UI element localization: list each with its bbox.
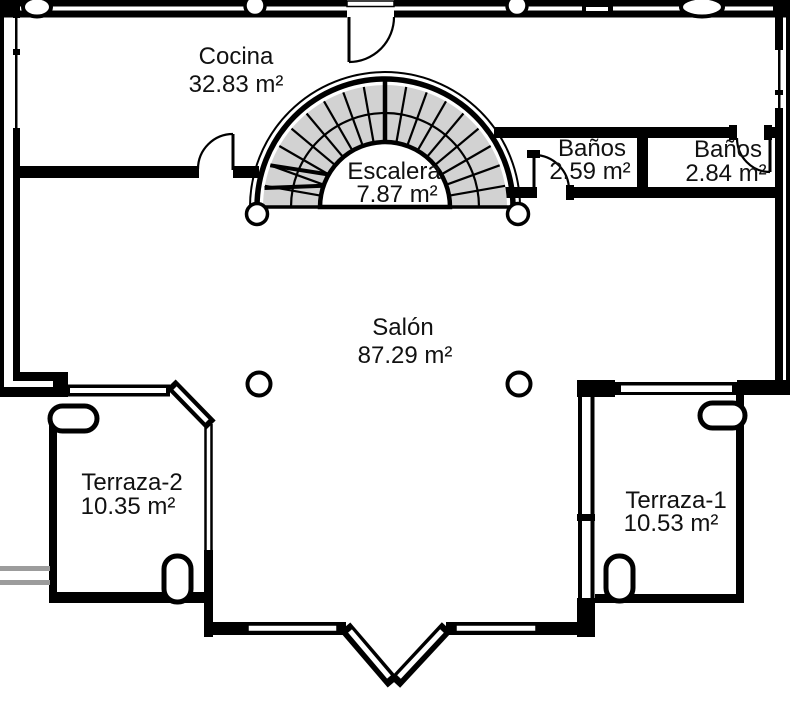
room-name-terraza-2: Terraza-2 — [81, 469, 182, 496]
room-name-salon: Salón — [372, 314, 433, 341]
terraza-2-column-top — [50, 406, 97, 431]
room-area-salon: 87.29 m² — [358, 342, 453, 369]
room-area-terraza-1: 10.53 m² — [624, 510, 719, 537]
railing-lines — [0, 566, 50, 585]
terraza-1-column-top — [700, 403, 745, 428]
column-top-right — [681, 0, 723, 17]
room-name-banos-2: Baños — [694, 136, 762, 163]
cocina-wall — [13, 166, 199, 178]
room-area-escalera: 7.87 m² — [356, 181, 437, 208]
salon-bay-walls — [204, 380, 615, 683]
entrance-threshold — [347, 1, 394, 7]
stair-column-left — [247, 204, 268, 225]
salon-column-left — [248, 373, 271, 396]
room-name-cocina: Cocina — [199, 43, 274, 70]
column-top-1 — [245, 0, 265, 16]
salon-column-right — [508, 373, 531, 396]
room-area-terraza-2: 10.35 m² — [81, 493, 176, 520]
floor-plan-canvas: Cocina 32.83 m² Escalera 7.87 m² Baños 2… — [0, 0, 795, 707]
room-area-banos-1: 2.59 m² — [549, 158, 630, 185]
terraza-2-column-bottom — [164, 556, 191, 602]
cocina-door — [198, 134, 233, 170]
room-area-cocina: 32.83 m² — [189, 71, 284, 98]
column-top-2 — [507, 0, 527, 16]
floor-plan-page: Cocina 32.83 m² Escalera 7.87 m² Baños 2… — [0, 0, 795, 707]
column-top-left — [23, 0, 51, 17]
room-area-banos-2: 2.84 m² — [685, 160, 766, 187]
terraza-1-column-bottom — [606, 556, 633, 601]
stair-column-right — [508, 204, 529, 225]
entrance-door — [349, 17, 394, 62]
